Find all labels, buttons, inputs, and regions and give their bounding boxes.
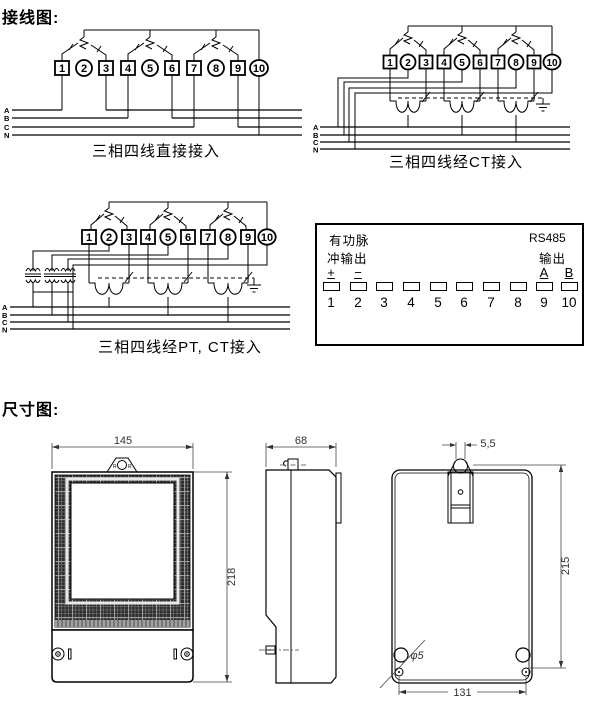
bus-label: N <box>2 326 7 335</box>
terminal-number: 3 <box>126 232 132 244</box>
terminals: 1 2 3 4 5 6 7 8 9 10 <box>384 55 561 70</box>
terminal-number: 2 <box>405 58 411 69</box>
bus-label: N <box>313 146 318 155</box>
terminal-number: 4 <box>441 58 447 69</box>
terminal-number: 6 <box>185 232 191 244</box>
terminal-pad <box>536 282 553 291</box>
slot-width-dimension: 5,5 <box>442 438 496 459</box>
terminal-column: B 10 <box>556 265 582 310</box>
terminal-number: 8 <box>225 232 231 244</box>
rs485-label: RS485 <box>529 231 566 245</box>
terminal-block-number: 4 <box>398 295 424 310</box>
top-voltage-bus <box>390 26 552 55</box>
meter-side-view: 68 <box>253 435 353 700</box>
terminal-pad <box>483 282 500 291</box>
side-terminal-rib <box>336 473 341 523</box>
top-voltage-bus <box>62 30 259 61</box>
terminal-number: 2 <box>81 63 87 75</box>
terminal-number: 6 <box>169 63 175 75</box>
terminal-column: 3 <box>371 265 397 310</box>
terminal-pad <box>350 282 367 291</box>
terminal-block-number: 2 <box>345 295 371 310</box>
terminal-block-number: 10 <box>556 295 582 310</box>
plus-symbol: + <box>318 265 344 281</box>
terminal-number: 8 <box>213 63 219 75</box>
datasheet-page: 接线图: A B C N <box>0 0 616 718</box>
terminal-number: 10 <box>253 63 265 75</box>
depth-dimension: 68 <box>266 435 336 467</box>
terminal-pad <box>430 282 447 291</box>
terminal-column: A 9 <box>531 265 557 310</box>
ct-symbols <box>89 244 248 322</box>
diagram1-caption: 三相四线直接接入 <box>92 143 220 160</box>
side-seal-screw <box>259 646 299 654</box>
terminal-block-number: 1 <box>318 295 344 310</box>
terminal-number: 5 <box>459 58 465 69</box>
terminal-column: 8 <box>505 265 531 310</box>
terminal-block-diagram: 有功脉 冲输出 RS485 输出 + 1 − 2 3 4 5 <box>315 223 584 346</box>
terminal-number: 5 <box>165 232 171 244</box>
terminal-block-number: 3 <box>371 295 397 310</box>
terminal-number: 9 <box>235 63 241 75</box>
wiring-diagram-pt-ct: A B C N 1 2 3 4 5 6 7 8 9 10 三相四线经PT, CT… <box>0 195 310 363</box>
pt-symbols <box>25 267 76 322</box>
terminal-number: 1 <box>59 63 65 75</box>
terminal-number: 10 <box>261 232 273 244</box>
terminal-pad <box>561 282 578 291</box>
terminal-column: + 1 <box>318 265 344 310</box>
terminal-number: 1 <box>86 232 92 244</box>
wiring-diagram-ct: A B C N 1 2 3 4 5 6 7 8 9 10 三相四线经CT接入 <box>300 20 616 180</box>
phase-bus-lines: A B C N <box>2 303 290 335</box>
terminal-block-number: 5 <box>425 295 451 310</box>
height-dimension: 218 <box>193 472 238 682</box>
terminal-number: 3 <box>103 63 109 75</box>
terminal-number: 5 <box>147 63 153 75</box>
terminal-column: 5 <box>425 265 451 310</box>
terminal-number: 9 <box>531 58 537 69</box>
rs485-a-symbol: A <box>531 265 557 281</box>
bus-label: N <box>4 131 9 140</box>
diagram2-caption: 三相四线经CT接入 <box>389 154 523 171</box>
terminal-cover <box>52 630 193 682</box>
terminal-number: 9 <box>245 232 251 244</box>
terminal-column: 7 <box>478 265 504 310</box>
front-width-dim: 145 <box>114 435 132 447</box>
hanging-tab: R R <box>107 458 137 472</box>
terminal-wires <box>62 75 259 135</box>
dimension-section-title: 尺寸图: <box>2 396 59 420</box>
tab-mark-left: R <box>113 464 117 470</box>
terminal-number: 7 <box>191 63 197 75</box>
terminal-number: 4 <box>145 232 152 244</box>
terminal-number: 7 <box>205 232 211 244</box>
width-dimension: 145 <box>52 435 193 469</box>
terminal-block-number: 7 <box>478 295 504 310</box>
terminal-block-number: 6 <box>451 295 477 310</box>
terminal-number: 10 <box>546 58 558 69</box>
terminal-pad <box>510 282 527 291</box>
terminal-column: 6 <box>451 265 477 310</box>
terminal-number: 8 <box>513 58 519 69</box>
meter-body-front <box>52 472 193 682</box>
pulse-output-label-line1: 有功脉 <box>329 230 370 249</box>
bus-label: B <box>4 114 10 123</box>
wiring-diagram-direct: A B C N 1 2 3 4 5 6 7 8 9 10 三相四线直接接入 <box>0 22 310 172</box>
meter-front-view: 145 R R 218 <box>30 435 240 700</box>
phase-bus-lines: A B C N <box>4 106 302 140</box>
side-profile <box>259 459 341 683</box>
phase-bus-lines: A B C N <box>313 123 570 155</box>
tab-mark-right: R <box>128 464 132 470</box>
diagram3-caption: 三相四线经PT, CT接入 <box>98 339 262 356</box>
back-height-dim: 215 <box>560 557 572 575</box>
terminal-number: 3 <box>423 58 429 69</box>
terminal-number: 1 <box>387 58 393 69</box>
minus-symbol: − <box>345 265 371 281</box>
front-height-dim: 218 <box>226 568 238 586</box>
hole-pitch-dim: 131 <box>453 687 471 699</box>
terminal-pad <box>376 282 393 291</box>
rs485-b-symbol: B <box>556 265 582 281</box>
terminals: 1 2 3 4 5 6 7 8 9 10 <box>55 60 268 76</box>
top-voltage-bus <box>91 202 267 231</box>
side-depth-dim: 68 <box>295 435 307 447</box>
voltage-tap-wires <box>338 70 552 149</box>
terminal-block-number: 9 <box>531 295 557 310</box>
terminal-pad <box>323 282 340 291</box>
terminal-pad <box>403 282 420 291</box>
terminal-number: 7 <box>495 58 501 69</box>
terminal-number: 2 <box>106 232 112 244</box>
terminal-number: 6 <box>477 58 483 69</box>
terminals: 1 2 3 4 5 6 7 8 9 10 <box>82 229 276 244</box>
terminal-block-number: 8 <box>505 295 531 310</box>
slot-width-dim: 5,5 <box>480 438 495 450</box>
terminal-column: 4 <box>398 265 424 310</box>
display-window <box>71 483 174 599</box>
meter-back-view: 5,5 φ5 215 131 <box>380 428 616 700</box>
terminal-column: − 2 <box>345 265 371 310</box>
hanging-hook <box>280 459 307 470</box>
hole-diameter-label: φ5 <box>410 650 424 662</box>
terminal-number: 4 <box>125 63 132 75</box>
terminal-pad <box>456 282 473 291</box>
